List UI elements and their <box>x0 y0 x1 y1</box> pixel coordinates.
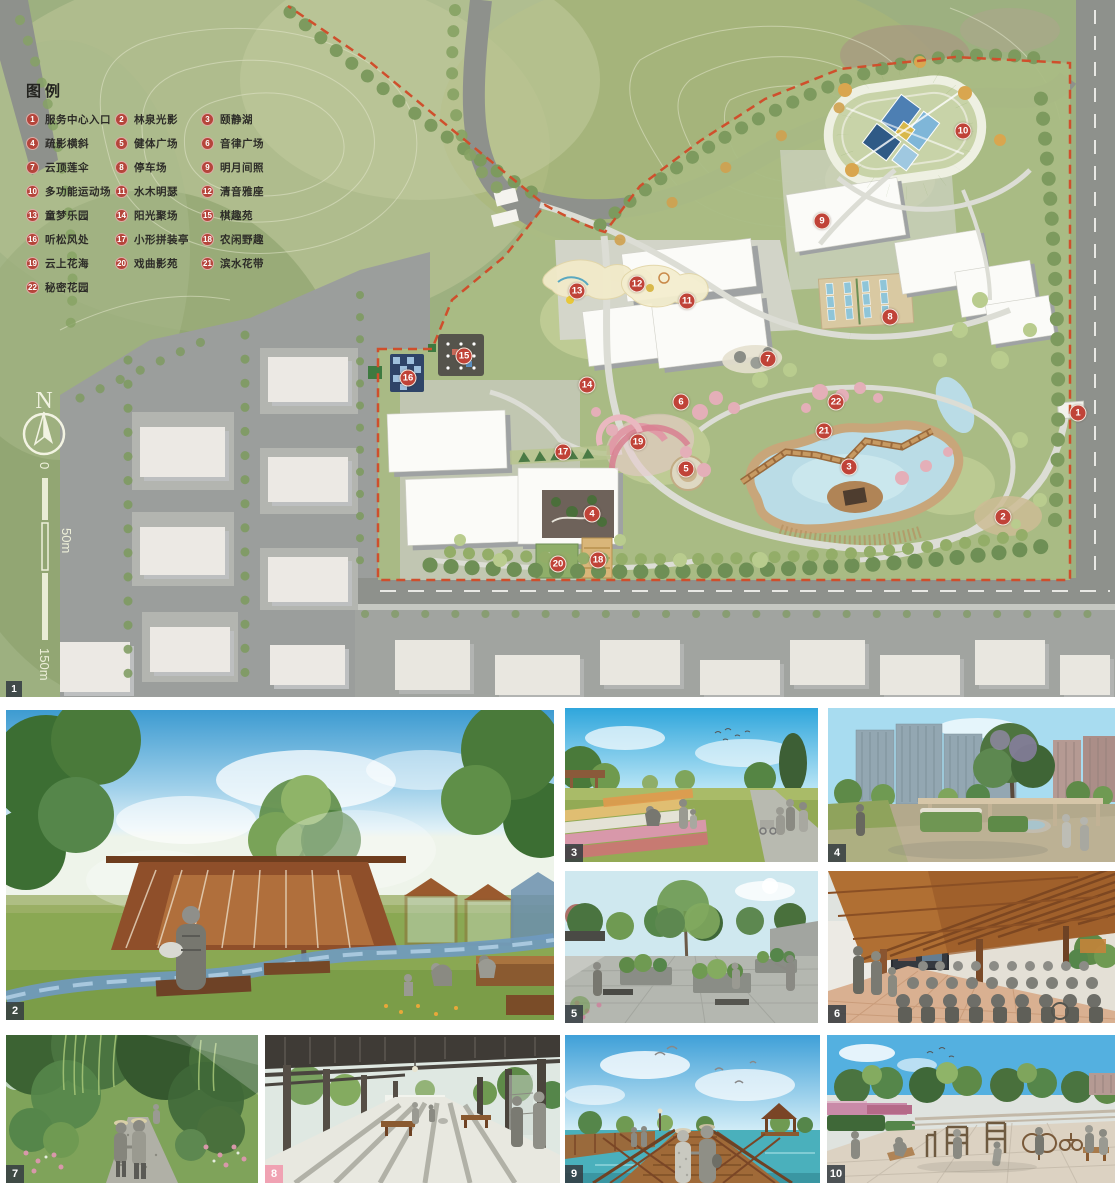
photo-7-illustration <box>6 1035 258 1183</box>
plan-marker-1: 1 <box>1070 405 1087 422</box>
legend-title: 图例 <box>26 80 312 101</box>
legend-item-14: 14阳光聚场 <box>115 208 201 223</box>
legend: 图例 1服务中心入口2林泉光影3颐静湖4疏影横斜5健体广场6音律广场7云顶莲伞8… <box>26 80 312 295</box>
legend-number-badge: 3 <box>201 113 214 126</box>
legend-number-badge: 19 <box>26 257 39 270</box>
photo-number-badge: 7 <box>6 1165 24 1183</box>
plan-marker-21: 21 <box>816 423 833 440</box>
legend-label: 秘密花园 <box>45 280 89 295</box>
legend-number-badge: 16 <box>26 233 39 246</box>
legend-number-badge: 11 <box>115 185 128 198</box>
legend-item-1: 1服务中心入口 <box>26 112 115 127</box>
legend-item-13: 13童梦乐园 <box>26 208 115 223</box>
legend-label: 音律广场 <box>220 136 264 151</box>
legend-number-badge: 8 <box>115 161 128 174</box>
parking-lot <box>818 273 913 329</box>
presentation-board: N 0 50m 150m 图例 1服务中心入口2林泉光影3颐静湖4疏影横斜5健体… <box>0 0 1115 1183</box>
plan-marker-13: 13 <box>569 283 586 300</box>
legend-label: 云上花海 <box>45 256 89 271</box>
legend-number-badge: 2 <box>115 113 128 126</box>
legend-label: 停车场 <box>134 160 167 175</box>
photo-rendering-2: 2 <box>6 710 554 1020</box>
photo-rendering-6: 6 <box>828 871 1115 1023</box>
photo-2-illustration <box>6 710 554 1020</box>
legend-label: 健体广场 <box>134 136 178 151</box>
legend-label: 棋趣苑 <box>220 208 253 223</box>
legend-number-badge: 21 <box>201 257 214 270</box>
legend-number-badge: 10 <box>26 185 39 198</box>
plan-marker-10: 10 <box>955 123 972 140</box>
plan-marker-2: 2 <box>995 509 1012 526</box>
legend-label: 阳光聚场 <box>134 208 178 223</box>
photo-number-badge: 6 <box>828 1005 846 1023</box>
legend-item-3: 3颐静湖 <box>201 112 301 127</box>
legend-grid: 1服务中心入口2林泉光影3颐静湖4疏影横斜5健体广场6音律广场7云顶莲伞8停车场… <box>26 112 312 295</box>
legend-item-10: 10多功能运动场 <box>26 184 115 199</box>
legend-number-badge: 22 <box>26 281 39 294</box>
plan-marker-20: 20 <box>550 556 567 573</box>
legend-label: 颐静湖 <box>220 112 253 127</box>
scale-zero: 0 <box>37 462 52 469</box>
legend-number-badge: 15 <box>201 209 214 222</box>
plan-marker-9: 9 <box>814 213 831 230</box>
photo-number-badge: 4 <box>828 844 846 862</box>
plan-marker-19: 19 <box>630 434 647 451</box>
legend-item-11: 11水木明瑟 <box>115 184 201 199</box>
legend-label: 戏曲影苑 <box>134 256 178 271</box>
plan-marker-8: 8 <box>882 309 899 326</box>
legend-item-20: 20戏曲影苑 <box>115 256 201 271</box>
legend-label: 多功能运动场 <box>45 184 111 199</box>
plan-marker-15: 15 <box>456 348 473 365</box>
legend-number-badge: 7 <box>26 161 39 174</box>
legend-number-badge: 1 <box>26 113 39 126</box>
photo-rendering-10: 10 <box>827 1035 1115 1183</box>
photo-8-illustration <box>265 1035 560 1183</box>
legend-label: 滨水花带 <box>220 256 264 271</box>
photo-number-badge: 5 <box>565 1005 583 1023</box>
photo-number-badge: 3 <box>565 844 583 862</box>
legend-item-2: 2林泉光影 <box>115 112 201 127</box>
legend-number-badge: 17 <box>115 233 128 246</box>
plan-marker-5: 5 <box>678 461 695 478</box>
legend-number-badge: 13 <box>26 209 39 222</box>
photo-rendering-9: 9 <box>565 1035 820 1183</box>
plan-marker-11: 11 <box>679 293 696 310</box>
legend-item-8: 8停车场 <box>115 160 201 175</box>
legend-label: 小形拼装亭 <box>134 232 189 247</box>
plan-marker-12: 12 <box>629 276 646 293</box>
legend-item-21: 21滨水花带 <box>201 256 301 271</box>
photo-number-badge: 2 <box>6 1002 24 1020</box>
photo-3-illustration <box>565 708 818 862</box>
photo-number-badge: 8 <box>265 1165 283 1183</box>
plan-number-badge: 1 <box>6 681 22 697</box>
plan-marker-6: 6 <box>673 394 690 411</box>
legend-number-badge: 12 <box>201 185 214 198</box>
legend-number-badge: 18 <box>201 233 214 246</box>
legend-label: 云顶莲伞 <box>45 160 89 175</box>
legend-item-18: 18农闲野趣 <box>201 232 301 247</box>
legend-item-9: 9明月间照 <box>201 160 301 175</box>
plan-marker-14: 14 <box>579 377 596 394</box>
legend-item-4: 4疏影横斜 <box>26 136 115 151</box>
photo-number-badge: 9 <box>565 1165 583 1183</box>
legend-item-12: 12清音雅座 <box>201 184 301 199</box>
legend-label: 疏影横斜 <box>45 136 89 151</box>
scale-end: 150m <box>37 648 52 681</box>
plan-marker-4: 4 <box>584 506 601 523</box>
legend-item-5: 5健体广场 <box>115 136 201 151</box>
legend-label: 明月间照 <box>220 160 264 175</box>
photo-number-badge: 10 <box>827 1165 845 1183</box>
legend-item-22: 22秘密花园 <box>26 280 115 295</box>
legend-number-badge: 4 <box>26 137 39 150</box>
photo-4-illustration <box>828 708 1115 862</box>
legend-number-badge: 20 <box>115 257 128 270</box>
legend-label: 听松风处 <box>45 232 89 247</box>
photo-rendering-3: 3 <box>565 708 818 862</box>
photo-9-illustration <box>565 1035 820 1183</box>
photo-rendering-8: 8 <box>265 1035 560 1183</box>
scale-mid: 50m <box>59 528 74 553</box>
legend-label: 清音雅座 <box>220 184 264 199</box>
photo-rendering-7: 7 <box>6 1035 258 1183</box>
legend-number-badge: 6 <box>201 137 214 150</box>
legend-item-15: 15棋趣苑 <box>201 208 301 223</box>
legend-item-7: 7云顶莲伞 <box>26 160 115 175</box>
legend-label: 水木明瑟 <box>134 184 178 199</box>
plan-marker-7: 7 <box>760 351 777 368</box>
legend-number-badge: 5 <box>115 137 128 150</box>
legend-label: 林泉光影 <box>134 112 178 127</box>
legend-item-19: 19云上花海 <box>26 256 115 271</box>
legend-item-6: 6音律广场 <box>201 136 301 151</box>
master-plan: N 0 50m 150m 图例 1服务中心入口2林泉光影3颐静湖4疏影横斜5健体… <box>0 0 1115 697</box>
legend-number-badge: 14 <box>115 209 128 222</box>
photo-rendering-5: 5 <box>565 871 818 1023</box>
plan-marker-3: 3 <box>841 459 858 476</box>
legend-label: 童梦乐园 <box>45 208 89 223</box>
plan-marker-22: 22 <box>828 394 845 411</box>
legend-item-17: 17小形拼装亭 <box>115 232 201 247</box>
legend-item-16: 16听松风处 <box>26 232 115 247</box>
photo-6-illustration <box>828 871 1115 1023</box>
photo-rendering-4: 4 <box>828 708 1115 862</box>
plan-marker-18: 18 <box>590 552 607 569</box>
photo-5-illustration <box>565 871 818 1023</box>
legend-number-badge: 9 <box>201 161 214 174</box>
north-label: N <box>35 388 52 414</box>
photo-10-illustration <box>827 1035 1115 1183</box>
plan-marker-17: 17 <box>555 444 572 461</box>
plan-marker-16: 16 <box>400 370 417 387</box>
legend-label: 农闲野趣 <box>220 232 264 247</box>
legend-label: 服务中心入口 <box>45 112 111 127</box>
